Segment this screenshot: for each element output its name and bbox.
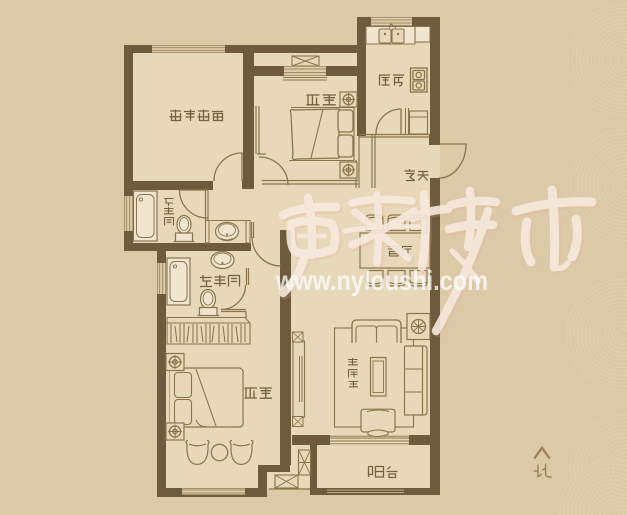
svg-text:www.nyloushi.com: www.nyloushi.com xyxy=(275,265,488,296)
